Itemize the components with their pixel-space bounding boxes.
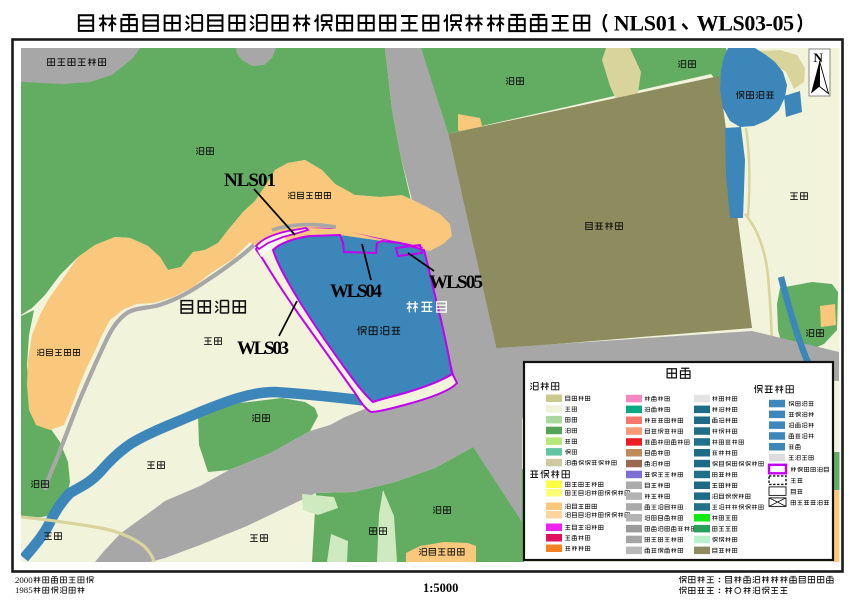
svg-text:WLS05: WLS05 bbox=[429, 272, 483, 293]
svg-text:NLS01: NLS01 bbox=[224, 170, 276, 191]
svg-text:NLS01: NLS01 bbox=[614, 11, 678, 36]
svg-text:1:5000: 1:5000 bbox=[423, 581, 458, 595]
svg-text:WLS03: WLS03 bbox=[237, 338, 289, 359]
svg-text:2000: 2000 bbox=[15, 575, 33, 585]
svg-text:WLS04: WLS04 bbox=[330, 281, 383, 302]
svg-text:1985: 1985 bbox=[15, 585, 33, 595]
svg-text:WLS03-05: WLS03-05 bbox=[697, 11, 795, 36]
svg-text:N: N bbox=[814, 50, 824, 65]
